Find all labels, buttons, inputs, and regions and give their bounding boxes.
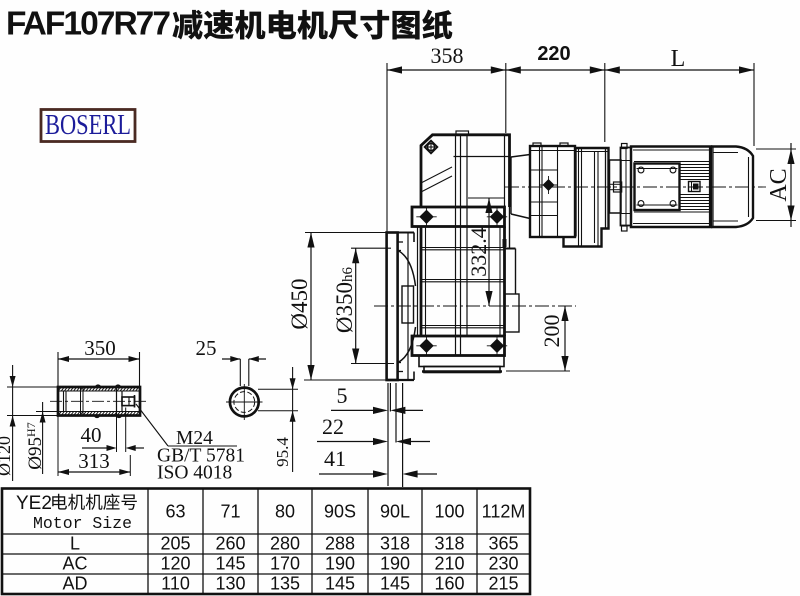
svg-text:135: 135	[270, 574, 300, 594]
svg-text:190: 190	[380, 554, 410, 574]
svg-text:170: 170	[270, 554, 300, 574]
svg-text:120: 120	[160, 554, 190, 574]
svg-text:63: 63	[165, 502, 185, 522]
svg-text:230: 230	[488, 554, 518, 574]
svg-text:205: 205	[160, 534, 190, 554]
svg-text:260: 260	[215, 534, 245, 554]
svg-text:25: 25	[196, 336, 217, 360]
svg-text:112M: 112M	[482, 502, 526, 522]
svg-text:100: 100	[434, 502, 464, 522]
svg-text:71: 71	[220, 502, 240, 522]
svg-text:318: 318	[380, 534, 410, 554]
svg-text:L: L	[70, 534, 80, 554]
svg-text:145: 145	[215, 554, 245, 574]
svg-text:YE2: YE2	[16, 493, 52, 514]
svg-text:AD: AD	[62, 574, 87, 594]
svg-text:5: 5	[337, 383, 348, 408]
svg-text:90S: 90S	[324, 502, 356, 522]
svg-text:358: 358	[431, 43, 464, 68]
svg-text:145: 145	[325, 574, 355, 594]
svg-text:145: 145	[380, 574, 410, 594]
svg-text:BOSERL: BOSERL	[45, 110, 131, 141]
svg-text:95.4: 95.4	[273, 437, 292, 467]
svg-text:110: 110	[161, 574, 190, 594]
svg-text:AC: AC	[766, 168, 792, 201]
svg-text:220: 220	[537, 43, 570, 65]
svg-text:80: 80	[275, 502, 295, 522]
svg-text:200: 200	[539, 315, 564, 348]
svg-text:Motor Size: Motor Size	[33, 514, 132, 533]
svg-text:22: 22	[322, 414, 344, 439]
svg-text:288: 288	[325, 534, 355, 554]
svg-text:350: 350	[84, 336, 116, 360]
svg-text:215: 215	[488, 574, 518, 594]
svg-text:313: 313	[78, 449, 110, 473]
svg-text:41: 41	[324, 446, 346, 471]
svg-text:90L: 90L	[380, 502, 410, 522]
svg-text:Ø120: Ø120	[0, 436, 14, 476]
svg-text:318: 318	[434, 534, 464, 554]
svg-text:FAF107R77: FAF107R77	[6, 6, 171, 43]
svg-text:365: 365	[488, 534, 518, 554]
svg-text:210: 210	[434, 554, 464, 574]
svg-text:Ø450: Ø450	[287, 278, 312, 329]
svg-text:130: 130	[215, 574, 245, 594]
svg-text:ISO 4018: ISO 4018	[157, 463, 232, 484]
svg-text:190: 190	[325, 554, 355, 574]
svg-text:L: L	[671, 46, 686, 72]
svg-text:40: 40	[81, 423, 102, 447]
svg-text:280: 280	[270, 534, 300, 554]
svg-text:AC: AC	[62, 554, 87, 574]
svg-text:160: 160	[434, 574, 464, 594]
svg-text:332.4: 332.4	[466, 227, 491, 277]
